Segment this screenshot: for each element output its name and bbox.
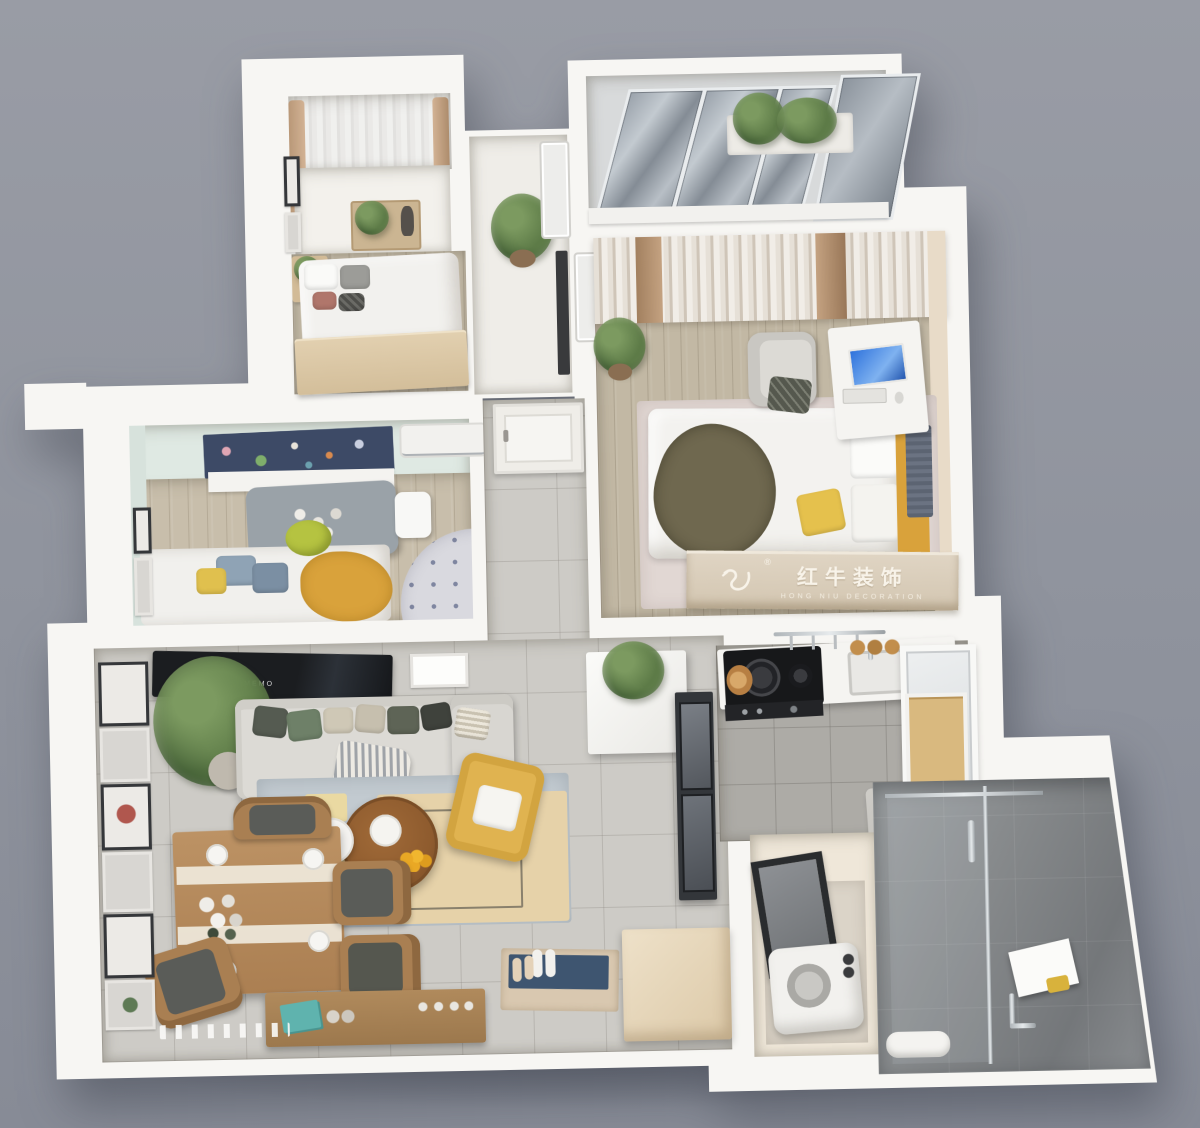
sill-vase: [401, 206, 415, 236]
bath-white-fixtures: [886, 1031, 951, 1058]
kids-chair-white: [395, 492, 432, 539]
cabinet-glass-door-2: [681, 794, 715, 893]
plate-left-tab: [24, 383, 87, 430]
shoes-pair-white-1: [532, 949, 543, 977]
sideboard-cups: [325, 1009, 355, 1024]
kids-ac-unit: [399, 422, 488, 458]
open-shelf-cabinet: [905, 692, 969, 785]
sofa-cushion-dark-2: [419, 701, 453, 731]
watermark-brand-en: HONG NIU DECORATION: [781, 593, 925, 601]
door-handle: [503, 430, 508, 442]
master-bedside-mat: [905, 425, 933, 518]
registered-mark: ®: [764, 557, 771, 567]
slippers-beige: [512, 958, 522, 982]
bedroom2-footboard: [294, 330, 469, 396]
shoe-cabinet: [622, 927, 732, 1041]
bathroom-faucet-spout: [1010, 1023, 1036, 1029]
master-pillow-yellow: [795, 487, 846, 537]
sideboard-bottles: [417, 999, 473, 1014]
master-pillow-2: [850, 484, 899, 543]
bed-pillow-gray: [340, 265, 370, 290]
sofa-cushion-dark-1: [252, 705, 289, 739]
entry-mat-navy: [508, 954, 608, 989]
master-curtain-brown-1: [635, 237, 663, 324]
bedroom2-wall-frame-1: [283, 156, 300, 206]
gallery-frame-2: [99, 727, 150, 782]
bed-pillow-dark-pattern: [338, 293, 364, 312]
kids-pillow-blue-2: [252, 563, 289, 594]
bathroom-faucet: [1009, 993, 1015, 1027]
shower-door-handle: [968, 820, 976, 862]
sofa-cushion-striped: [453, 706, 491, 741]
washer-knobs: [840, 953, 857, 979]
wardrobe-dark-strip: [556, 251, 571, 375]
desk-keyboard: [842, 388, 886, 404]
sofa-cushion-green-2: [387, 706, 420, 735]
bedroom2-wall-frame-2: [285, 212, 302, 252]
gallery-frame-5: [103, 913, 154, 978]
desk-monitor: [848, 343, 908, 388]
floorplan-render-scene: ® 红牛装饰 HONG NIU DECORATION: [0, 0, 1200, 1128]
dining-chair-right-1-seat: [340, 868, 393, 917]
bed-pillow-rust: [312, 291, 336, 309]
gallery-frame-6: [105, 979, 156, 1030]
gallery-frame-1: [98, 661, 149, 726]
white-structure-plate: ® 红牛装饰 HONG NIU DECORATION: [0, 0, 1200, 1128]
kids-pillow-yellow: [196, 568, 227, 595]
gallery-frame-3: [101, 783, 152, 850]
watermark-brand-cn: 红牛装饰: [797, 561, 909, 592]
tv-wall-artwork: [410, 653, 469, 688]
gallery-frame-4: [102, 851, 153, 912]
bull-swoosh-icon: [720, 567, 754, 593]
chair-plaid-throw: [767, 376, 813, 415]
wood-jars: [848, 638, 902, 657]
desk-mouse: [895, 392, 904, 404]
master-curtain-brown-2: [815, 233, 847, 320]
white-decor-marks: [160, 1023, 290, 1040]
kids-wall-frame-2: [134, 557, 153, 615]
bedroom2-window-curtain: [288, 93, 452, 172]
sofa-cushion-beige-1: [323, 707, 354, 734]
dining-chair-top-seat: [249, 804, 316, 835]
sofa-cushion-beige-2: [354, 704, 386, 734]
branded-headboard: ® 红牛装饰 HONG NIU DECORATION: [686, 550, 958, 610]
ac-unit-1: [539, 141, 571, 240]
cabinet-glass-door-1: [679, 702, 713, 791]
apartment-plan: ® 红牛装饰 HONG NIU DECORATION: [0, 0, 1200, 1128]
sofa-cushion-green-1: [286, 708, 323, 742]
dining-chair-right-2-seat: [348, 942, 403, 995]
bed-pillow-white: [304, 263, 339, 290]
kids-wall-frame-1: [133, 507, 152, 553]
